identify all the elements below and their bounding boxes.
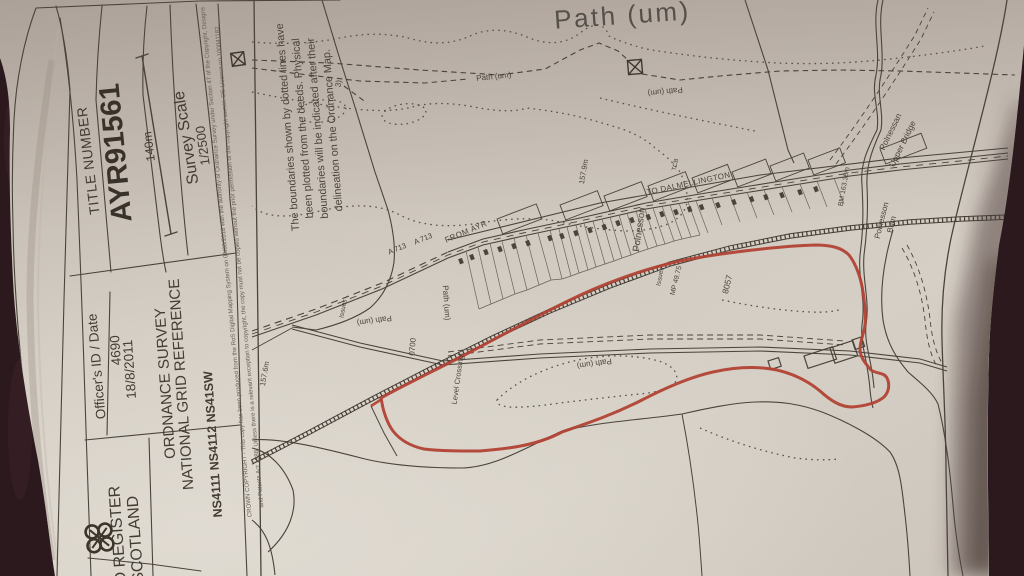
svg-text:0700: 0700 bbox=[407, 337, 418, 356]
